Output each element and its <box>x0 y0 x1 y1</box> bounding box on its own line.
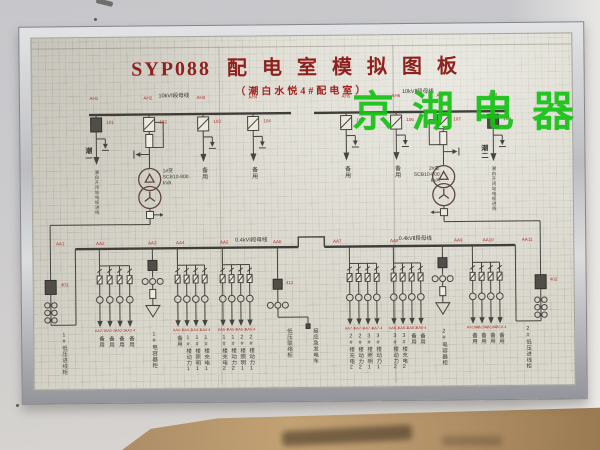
lv-feeder-group <box>96 249 133 328</box>
switch-code: 104 <box>263 119 271 124</box>
lv-feeder-group <box>469 245 503 324</box>
feeder-label: 备用 <box>488 332 494 344</box>
lv-bus-code: AA2 <box>96 242 105 247</box>
incoming2-name: 潮二 <box>481 144 488 159</box>
cardboard-box <box>122 406 600 450</box>
lv-incoming-2 <box>515 245 547 321</box>
feeder-label: 备用 <box>470 332 476 344</box>
lv-bus-code: AA7 <box>333 240 342 245</box>
feeder-label: 备用 <box>497 332 503 344</box>
feeder-label: 备用 <box>409 333 415 345</box>
lv-feeder-group <box>174 248 208 327</box>
lv-bus-code: AA10 <box>483 238 494 243</box>
feeder-code: AA2-2 <box>105 330 116 334</box>
transformer-1-symbol <box>139 168 161 208</box>
wall-screw <box>94 18 97 21</box>
lv-bus-code: AA1 <box>56 242 65 247</box>
feeder-code: AA2-3 <box>115 330 126 334</box>
feeder-label: 1#楼动力1 <box>184 335 190 373</box>
wall-screw <box>16 404 19 407</box>
capacitor1-label: 1#电容器柜 <box>150 331 156 368</box>
capacitor2-label: 2#电容器柜 <box>440 329 446 366</box>
feeder-code: AA5-4 <box>245 328 256 332</box>
board-title-code: SYP088 <box>131 58 211 81</box>
lv-tie-cabinet <box>267 247 310 329</box>
lv-bus-code: AA5 <box>220 241 229 246</box>
feeder-code: AA7-4 <box>372 327 383 331</box>
cabinet-code: AH2 <box>143 96 152 101</box>
board-title-text: 配电室模拟图板 <box>227 55 472 79</box>
feeder-label: 3#楼动力2 <box>391 333 397 371</box>
lv-feeder-group <box>346 246 380 325</box>
incoming1-code: 401 <box>61 283 69 288</box>
incoming1-name: 潮一 <box>85 147 92 162</box>
transformer1-spec: 1#变 SCB10-800 kVA <box>163 168 189 186</box>
switch-code: 102 <box>159 120 167 125</box>
tie-label: 低压联络柜 <box>285 328 291 358</box>
feeder-label: 3#楼充电2 <box>400 333 406 371</box>
feeder-label: 1#楼照明1 <box>193 335 199 373</box>
lv-feeder-group <box>219 247 253 326</box>
transformer2-spec: 2#变 SCB10-800 kVA <box>410 166 440 184</box>
lv-bus1-label: 0.4kVⅠ段母线 <box>235 238 267 244</box>
hv-bus1-label: 10kVⅠ段母线 <box>159 94 190 100</box>
switch-code: 101 <box>106 121 114 126</box>
feeder-label: 2#楼动力1 <box>247 334 253 372</box>
feeder-code: AA4-4 <box>200 329 211 333</box>
feeder-label: 备用 <box>97 336 103 348</box>
feeder-code: AA10-4 <box>494 326 507 330</box>
cabinet-code: AH3 <box>196 96 205 101</box>
cabinet-code: AH4 <box>248 95 257 100</box>
incoming1-label: 1#低压进线柜 <box>60 332 66 375</box>
incoming1-desc: 潮白开闭站电缆进线 <box>94 170 99 215</box>
lv-bus-code: AA11 <box>522 238 533 243</box>
lv-capacitor-2 <box>432 246 454 315</box>
feeder-label: 备用 <box>175 335 181 347</box>
transformer2-unit: kVA <box>410 178 440 184</box>
feeder-label: 备用 <box>479 332 485 344</box>
feeder-label: 备用 <box>418 333 424 345</box>
feeder-code: AA2-1 <box>95 330 106 334</box>
lv-bus-code: AA3 <box>148 241 157 246</box>
lv-bus-code: AA6 <box>273 240 282 245</box>
feeder-label: 1#楼充电2 <box>220 335 226 373</box>
incoming2-desc: 潮白开闭站电缆进线 <box>491 166 496 211</box>
feeder-label: 备用 <box>107 336 113 348</box>
hv-feeder-transformer-1 <box>49 114 165 280</box>
cabinet-code: AH1 <box>89 97 98 102</box>
spare-label: 备用 <box>344 166 350 179</box>
wall-crack <box>96 0 114 7</box>
lv-bus-jumper <box>298 237 324 247</box>
feeder-label: 2#楼照明1 <box>238 335 244 373</box>
feeder-label: 2#楼动力2 <box>356 333 362 371</box>
feeder-code: AA2-4 <box>125 330 136 334</box>
feeder-label: 1#楼充电1 <box>202 335 208 373</box>
photo-scene: SYP088配电室模拟图板 （潮白水悦4#配电室） 10kVⅠ段母线 10kVⅡ… <box>0 0 600 450</box>
watermark-text: 京湖电器 <box>352 78 592 139</box>
lv-bus-code: AA9 <box>454 238 463 243</box>
cardboard-print <box>282 425 413 447</box>
incoming2-label: 2#低压进线柜 <box>524 326 530 369</box>
spare-label: 备用 <box>251 166 257 179</box>
lv-bus-code: AA8 <box>390 239 399 244</box>
feeder-label: 备用 <box>127 336 133 348</box>
spare-label: 备用 <box>394 165 400 178</box>
incoming2-code: 402 <box>550 278 558 283</box>
spare-label: 备用 <box>201 167 207 180</box>
lv-feeder-group <box>390 246 424 325</box>
tie-code: 412 <box>286 281 294 286</box>
generator-label: 接应急发电车 <box>311 328 317 364</box>
feeder-label: 3#楼照明1 <box>365 333 371 371</box>
transformer1-unit: kVA <box>163 180 189 186</box>
feeder-label: 备用 <box>117 336 123 348</box>
switch-code: 103 <box>213 120 221 125</box>
feeder-label: 3#楼动力1 <box>374 333 380 371</box>
lv-bus <box>75 245 515 249</box>
lv-bus-code: AA4 <box>176 241 185 246</box>
cardboard-print <box>442 436 502 446</box>
feeder-label: 2#楼充电2 <box>347 334 353 372</box>
lv-capacitor-1 <box>142 248 164 317</box>
lv-bus2-label: 0.4kVⅡ段母线 <box>399 237 432 243</box>
feeder-code: AA8-4 <box>416 327 427 331</box>
feeder-label: 1#楼动力2 <box>229 335 235 373</box>
cabinet-code: AH5 <box>341 95 350 100</box>
